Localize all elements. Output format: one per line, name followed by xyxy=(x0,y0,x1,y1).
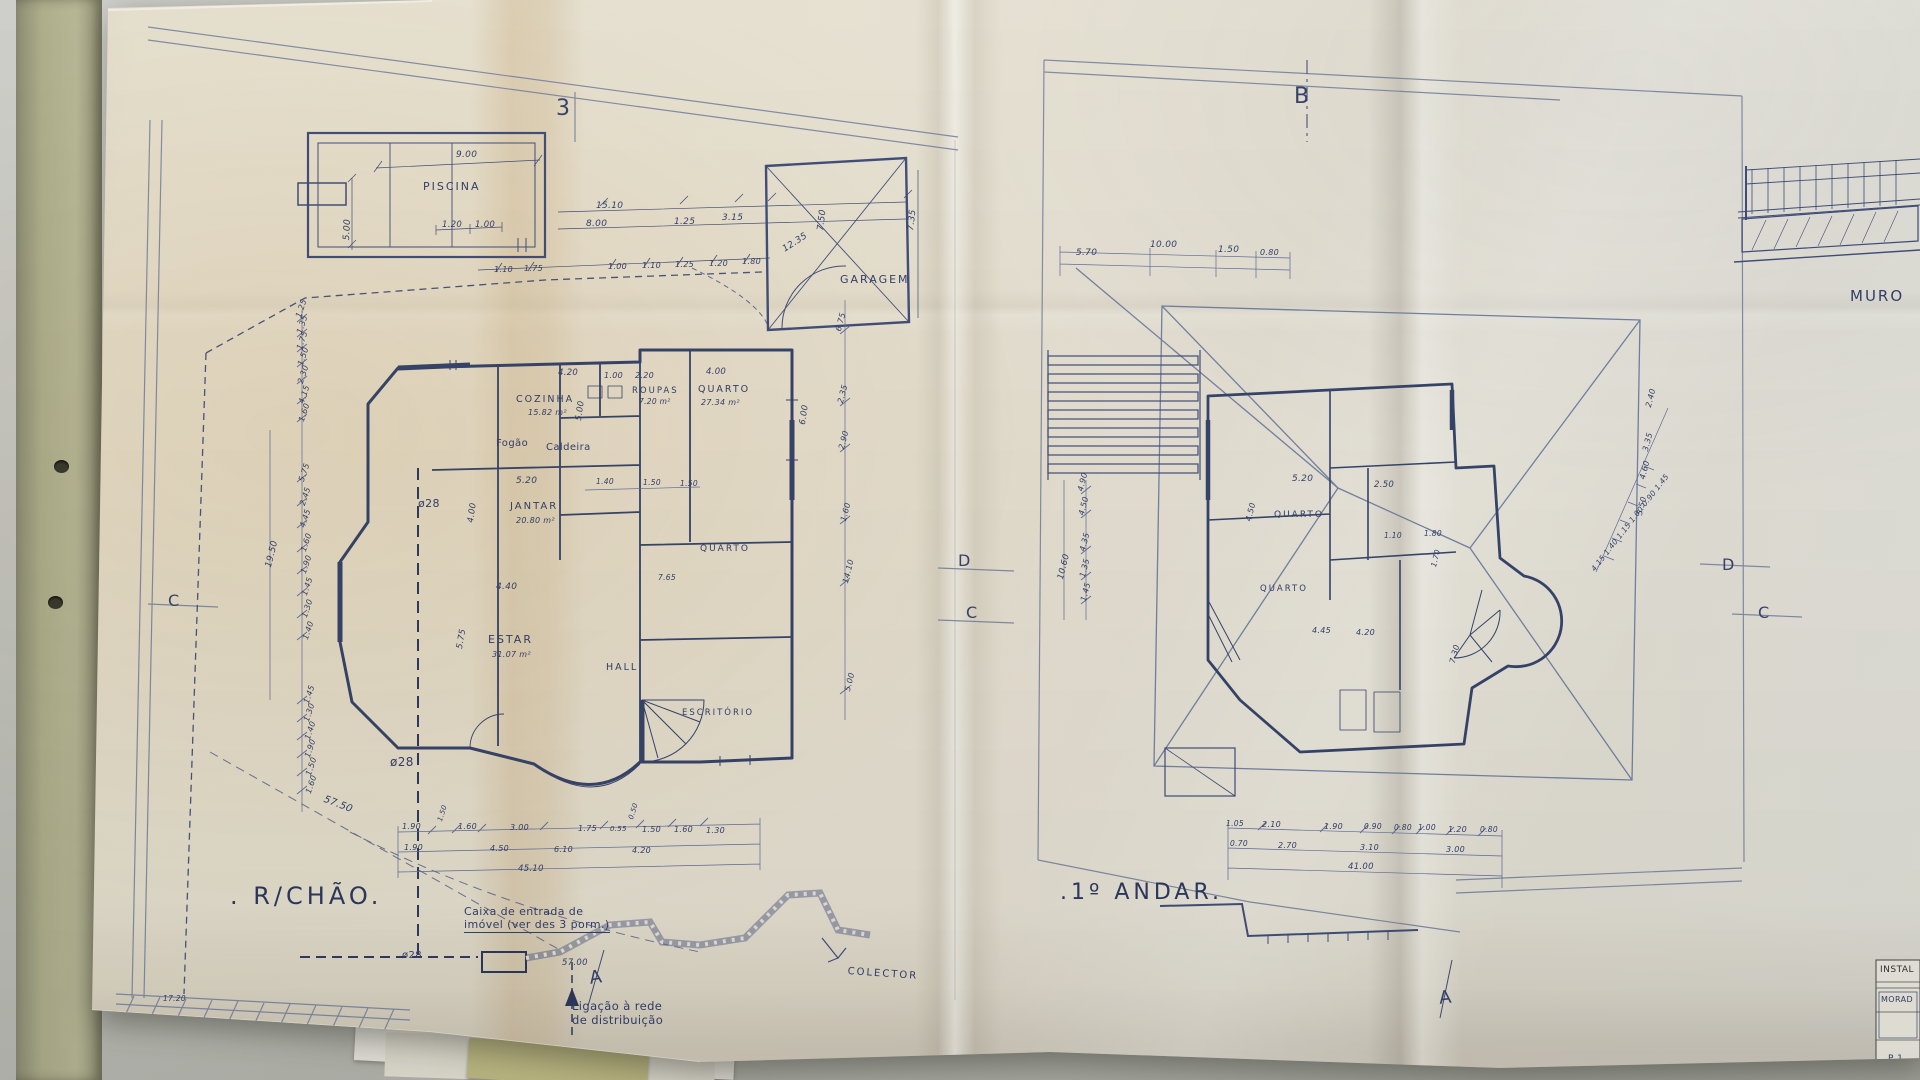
blueprint-sheet-wrap: 3PISCINA9.005.001.201.0015.108.001.253.1… xyxy=(0,0,1920,1080)
pergola xyxy=(1048,350,1200,480)
ground-floor-walls xyxy=(340,350,798,787)
first-floor-walls xyxy=(1208,384,1562,752)
title-block xyxy=(1876,960,1920,1080)
sheet-edge-highlight xyxy=(108,1,432,10)
first-floor-terrace xyxy=(1160,748,1418,944)
utility-linework xyxy=(482,893,1452,1018)
photo-of-blueprint: 3PISCINA9.005.001.201.0015.108.001.253.1… xyxy=(0,0,1920,1080)
dimension-chains-right xyxy=(1060,246,1668,888)
blueprint-sheet: 3PISCINA9.005.001.201.0015.108.001.253.1… xyxy=(0,0,1920,1080)
blueprint-linework xyxy=(0,0,1920,1080)
first-floor-roof xyxy=(1076,268,1640,780)
pool xyxy=(298,133,545,257)
sheet-edge-highlight xyxy=(92,1010,700,1062)
site-linework xyxy=(116,27,1802,1031)
wall-elevation xyxy=(1734,159,1920,262)
